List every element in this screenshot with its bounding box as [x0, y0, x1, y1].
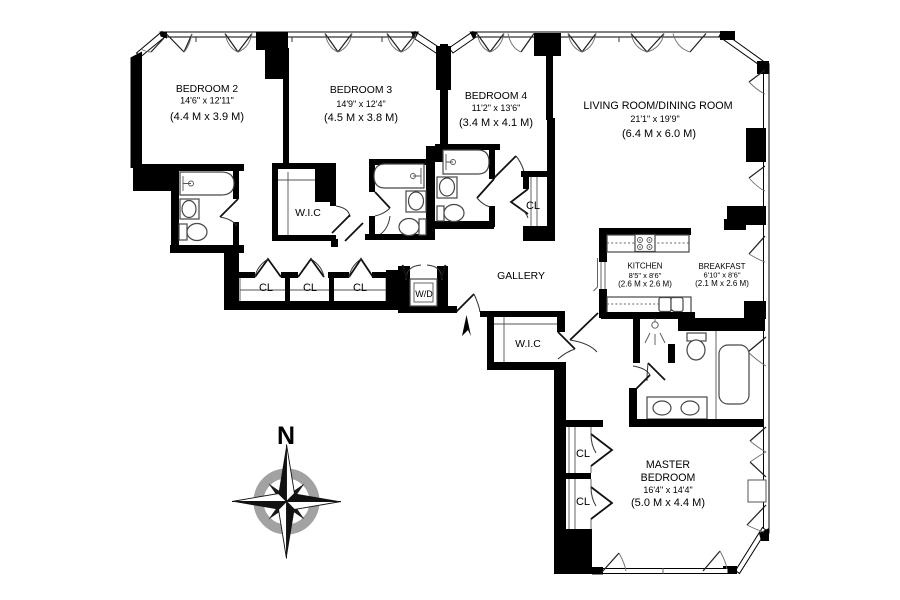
svg-text:KITCHEN: KITCHEN: [627, 262, 662, 271]
svg-text:CL: CL: [353, 282, 367, 294]
svg-text:GALLERY: GALLERY: [497, 271, 545, 282]
svg-text:N: N: [277, 422, 295, 450]
svg-text:(4.5 M x 3.8 M): (4.5 M x 3.8 M): [324, 112, 398, 124]
svg-text:(6.4 M x 6.0 M): (6.4 M x 6.0 M): [622, 128, 696, 140]
svg-text:11'2" x 13'6": 11'2" x 13'6": [472, 103, 521, 113]
svg-text:LIVING ROOM/DINING ROOM: LIVING ROOM/DINING ROOM: [583, 100, 732, 112]
svg-text:(4.4 M x 3.9 M): (4.4 M x 3.9 M): [170, 111, 244, 123]
svg-text:BEDROOM 4: BEDROOM 4: [465, 91, 528, 102]
svg-text:(5.0 M x 4.4 M): (5.0 M x 4.4 M): [631, 497, 705, 509]
svg-text:CL: CL: [526, 200, 540, 212]
svg-text:BEDROOM 2: BEDROOM 2: [176, 84, 239, 95]
svg-text:(2.1 M x 2.6 M): (2.1 M x 2.6 M): [695, 279, 749, 288]
svg-text:W.I.C: W.I.C: [295, 207, 321, 219]
svg-text:CL: CL: [576, 496, 590, 508]
svg-text:W.I.C: W.I.C: [515, 338, 541, 350]
svg-text:CL: CL: [576, 448, 590, 460]
svg-text:14'9" x 12'4": 14'9" x 12'4": [336, 99, 385, 109]
svg-text:W/D: W/D: [415, 289, 433, 299]
svg-text:(3.4 M x 4.1 M): (3.4 M x 4.1 M): [459, 117, 533, 129]
svg-text:14'6" x 12'11": 14'6" x 12'11": [180, 96, 234, 106]
svg-text:21'1" x 19'9": 21'1" x 19'9": [630, 114, 679, 124]
svg-text:(2.6 M x 2.6 M): (2.6 M x 2.6 M): [618, 280, 672, 289]
svg-text:BEDROOM: BEDROOM: [641, 472, 696, 484]
svg-text:MASTER: MASTER: [646, 459, 690, 471]
svg-text:BEDROOM 3: BEDROOM 3: [330, 85, 393, 96]
svg-text:16'4" x 14'4": 16'4" x 14'4": [643, 485, 692, 495]
svg-text:CL: CL: [303, 282, 317, 294]
svg-text:CL: CL: [259, 282, 273, 294]
